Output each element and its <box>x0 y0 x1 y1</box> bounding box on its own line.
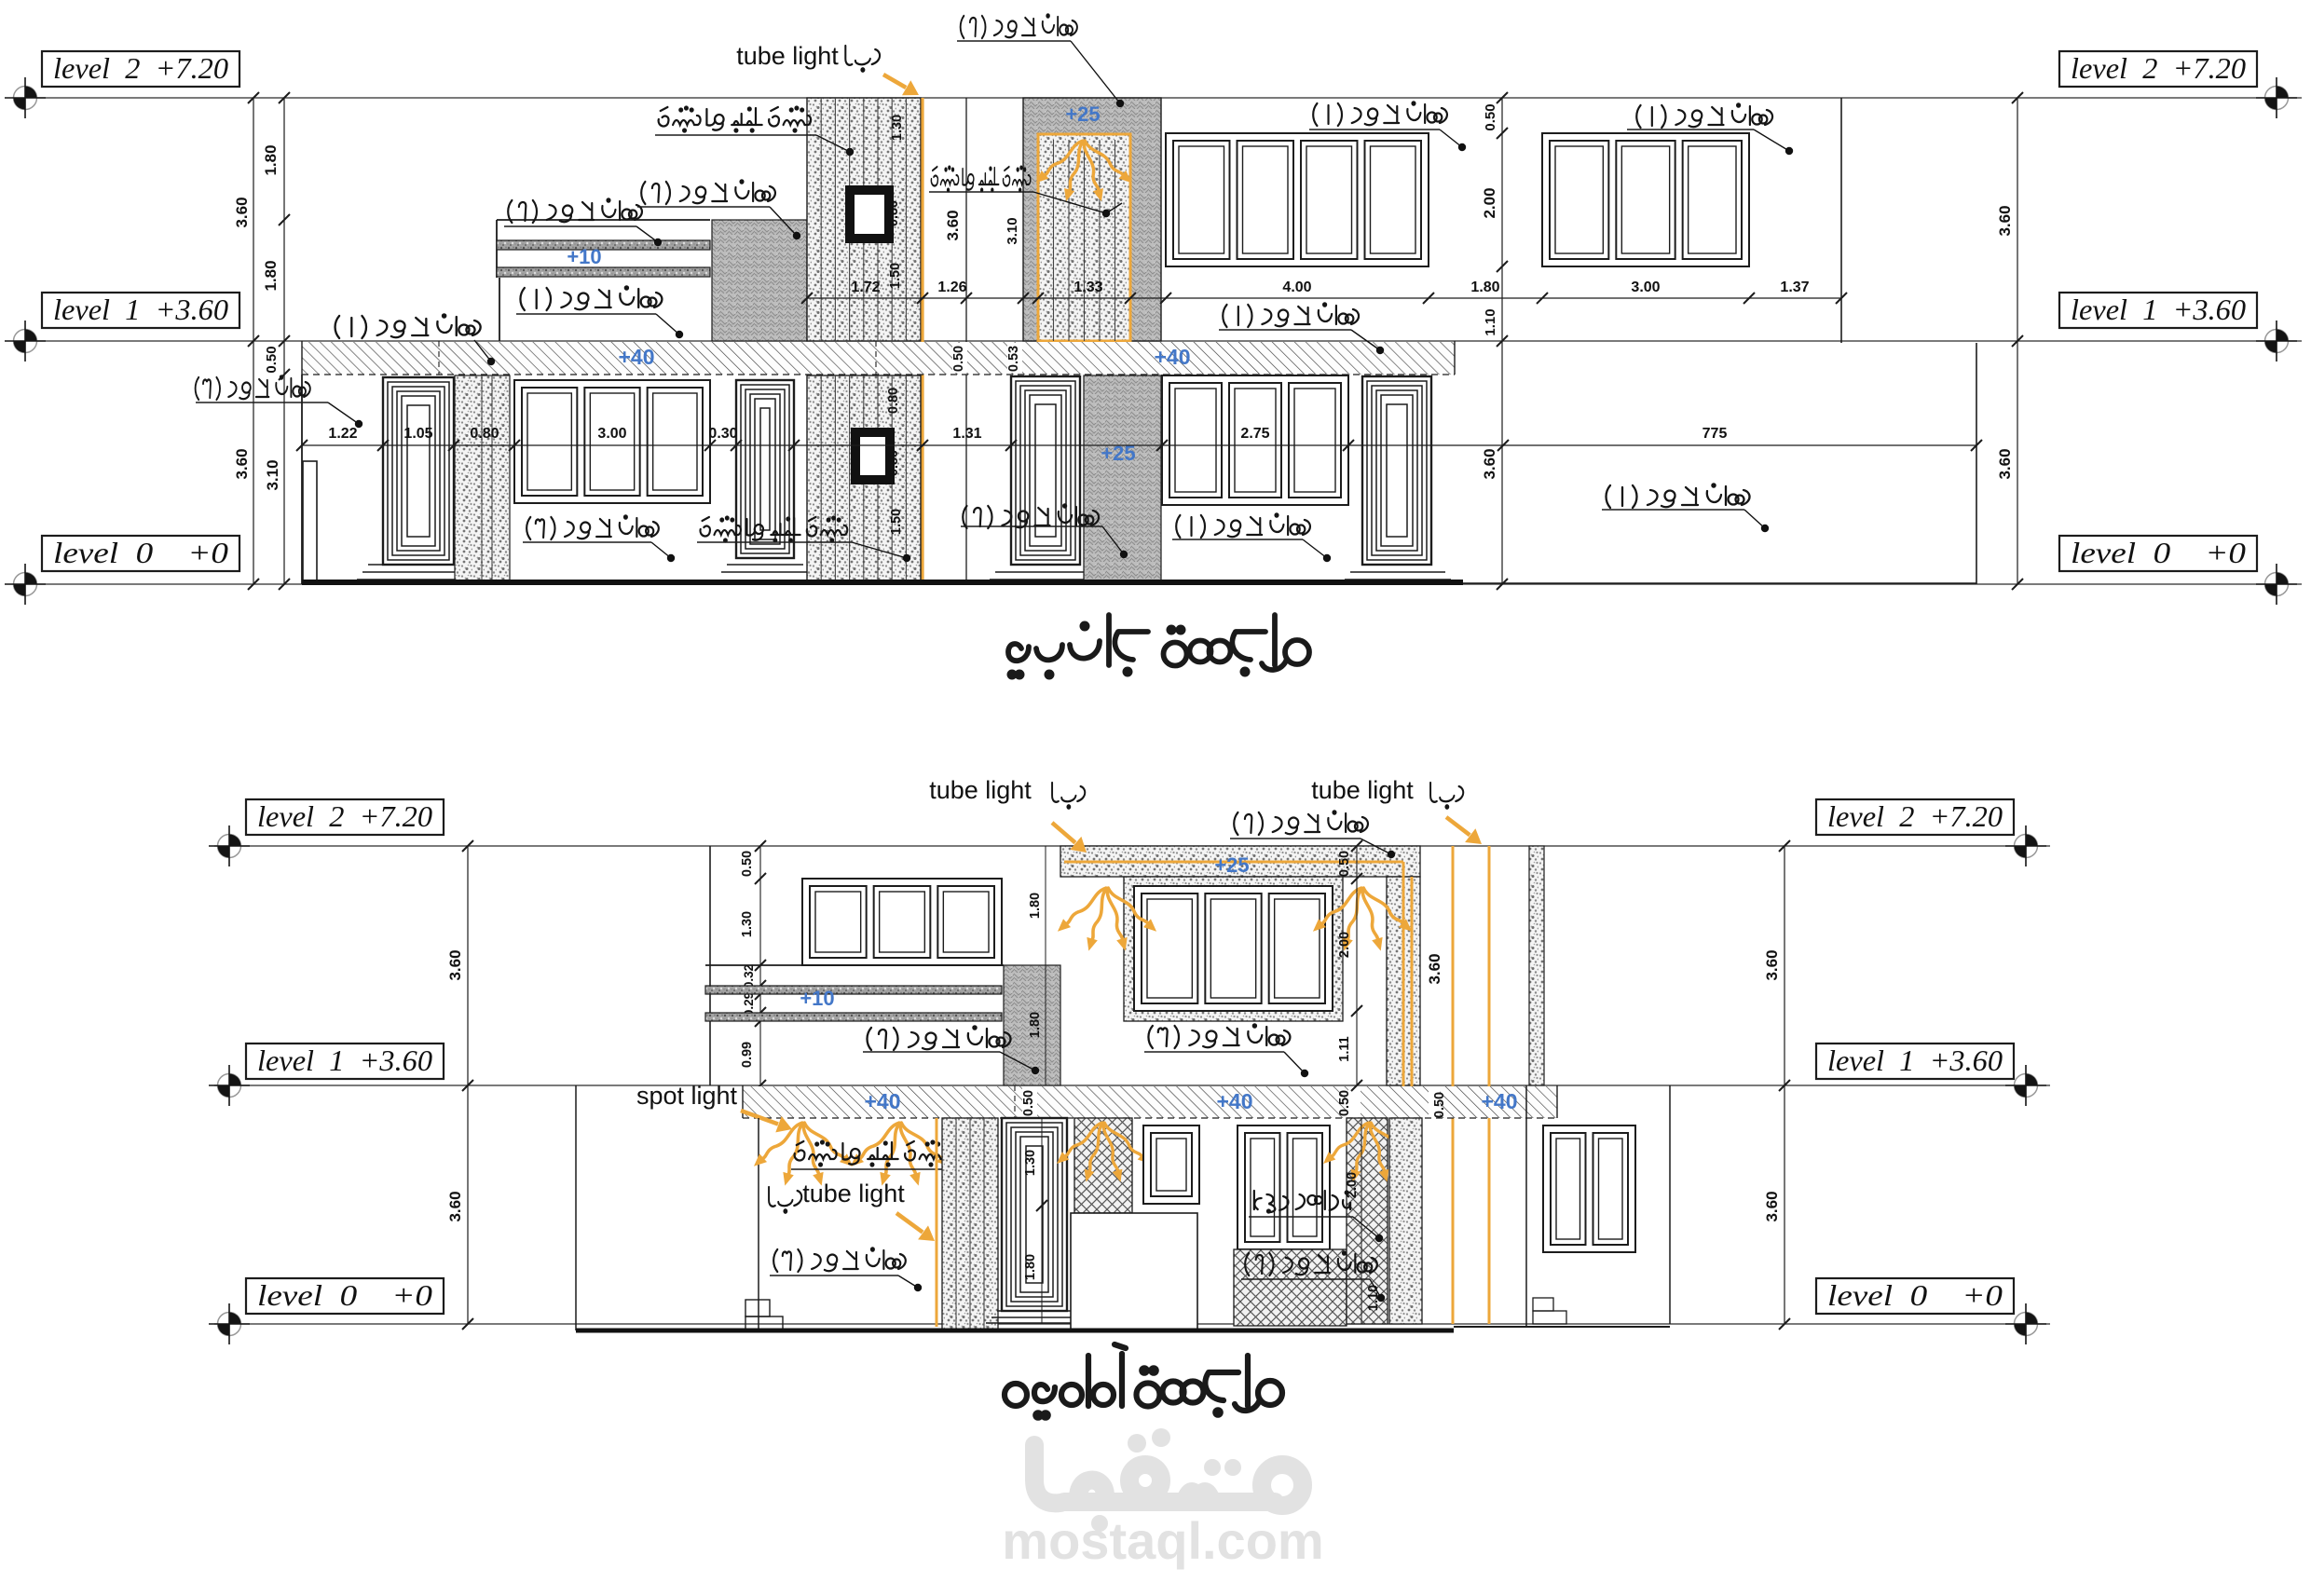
svg-text:0.80: 0.80 <box>886 388 901 414</box>
svg-text:+40: +40 <box>864 1089 900 1113</box>
svg-text:1.10: 1.10 <box>1366 1285 1381 1311</box>
svg-text:0.50: 0.50 <box>1337 851 1352 877</box>
svg-text:3.10: 3.10 <box>264 459 281 490</box>
svg-text:0.50: 0.50 <box>1432 1092 1447 1118</box>
svg-text:3.60: 3.60 <box>233 448 251 479</box>
svg-text:3.60: 3.60 <box>944 210 962 240</box>
svg-text:1.80: 1.80 <box>1028 893 1043 919</box>
svg-text:+40: +40 <box>1154 345 1190 369</box>
svg-text:3.10: 3.10 <box>1005 217 1020 244</box>
svg-text:3.60: 3.60 <box>1996 205 2014 236</box>
svg-text:2.00: 2.00 <box>1345 1172 1360 1198</box>
svg-text:0.50: 0.50 <box>1483 103 1498 130</box>
svg-text:1.50: 1.50 <box>888 263 903 289</box>
svg-text:+10: +10 <box>567 245 601 268</box>
svg-text:level 1 +3.60: level 1 +3.60 <box>53 293 228 326</box>
svg-text:level 2 +7.20: level 2 +7.20 <box>2071 51 2246 85</box>
svg-text:+40: +40 <box>1216 1089 1252 1113</box>
svg-text:1.10: 1.10 <box>1483 308 1498 335</box>
svg-text:0.32: 0.32 <box>742 964 756 989</box>
svg-text:1.05: 1.05 <box>403 426 432 442</box>
svg-text:1.80: 1.80 <box>262 260 280 291</box>
svg-text:2.00: 2.00 <box>1337 932 1352 958</box>
svg-text:1.33: 1.33 <box>1073 280 1102 295</box>
svg-text:level 2 +7.20: level 2 +7.20 <box>1827 799 2003 833</box>
svg-text:tube light: tube light <box>929 776 1032 804</box>
svg-text:1.80: 1.80 <box>262 144 280 175</box>
svg-text:+25: +25 <box>1065 102 1100 126</box>
svg-text:0.30: 0.30 <box>708 426 737 442</box>
svg-text:level 1 +3.60: level 1 +3.60 <box>1827 1044 2003 1077</box>
svg-text:0.53: 0.53 <box>1006 346 1021 372</box>
svg-text:3.00: 3.00 <box>597 426 626 442</box>
svg-text:1.22: 1.22 <box>328 426 357 442</box>
svg-text:level 2 +7.20: level 2 +7.20 <box>53 51 228 85</box>
svg-text:3.60: 3.60 <box>1763 1191 1781 1221</box>
svg-text:+25: +25 <box>1214 853 1249 877</box>
svg-text:mostaql.com: mostaql.com <box>1002 1511 1323 1570</box>
svg-text:1.80: 1.80 <box>1028 1012 1043 1038</box>
svg-text:2.00: 2.00 <box>1481 187 1498 218</box>
svg-text:level 1 +3.60: level 1 +3.60 <box>257 1044 432 1077</box>
svg-text:0.50: 0.50 <box>951 346 966 372</box>
svg-text:1.30: 1.30 <box>740 911 755 937</box>
svg-text:tube light: tube light <box>736 42 839 70</box>
svg-text:+40: +40 <box>618 345 654 369</box>
svg-text:0.99: 0.99 <box>740 1042 755 1068</box>
svg-text:3.60: 3.60 <box>1763 949 1781 980</box>
svg-text:1.72: 1.72 <box>851 280 880 295</box>
svg-text:1.11: 1.11 <box>1337 1036 1352 1061</box>
svg-text:+40: +40 <box>1481 1089 1517 1113</box>
svg-text:spot light: spot light <box>636 1082 738 1110</box>
svg-text:level 0 +0: level 0 +0 <box>53 536 228 569</box>
svg-text:level 0 +0: level 0 +0 <box>1827 1278 2003 1312</box>
svg-text:level 1 +3.60: level 1 +3.60 <box>2071 293 2246 326</box>
svg-text:1.30: 1.30 <box>890 115 905 141</box>
svg-text:tube light: tube light <box>802 1180 905 1207</box>
svg-text:3.60: 3.60 <box>233 197 251 227</box>
svg-text:2.75: 2.75 <box>1240 426 1269 442</box>
svg-text:3.00: 3.00 <box>1631 280 1660 295</box>
svg-text:level 2 +7.20: level 2 +7.20 <box>257 799 432 833</box>
svg-text:3.60: 3.60 <box>446 949 464 980</box>
svg-text:1.31: 1.31 <box>952 426 981 442</box>
svg-text:3.60: 3.60 <box>446 1191 464 1221</box>
svg-text:0.80: 0.80 <box>470 426 499 442</box>
svg-text:1.37: 1.37 <box>1780 280 1809 295</box>
svg-text:0.50: 0.50 <box>1337 1090 1352 1116</box>
svg-text:775: 775 <box>1702 426 1728 442</box>
svg-text:0.80: 0.80 <box>886 200 901 226</box>
svg-text:0.50: 0.50 <box>740 851 755 877</box>
svg-text:1.30: 1.30 <box>1023 1150 1038 1176</box>
svg-text:1.80: 1.80 <box>1470 280 1499 295</box>
svg-text:0.50: 0.50 <box>264 346 280 373</box>
svg-text:1.50: 1.50 <box>889 509 904 535</box>
svg-text:1.26: 1.26 <box>937 280 966 295</box>
svg-text:level 0 +0: level 0 +0 <box>257 1278 432 1312</box>
svg-text:3.60: 3.60 <box>1481 448 1498 479</box>
svg-text:+10: +10 <box>800 987 834 1010</box>
svg-text:1.80: 1.80 <box>1023 1254 1038 1280</box>
svg-text:4.00: 4.00 <box>1282 280 1311 295</box>
svg-text:0.80: 0.80 <box>886 450 901 476</box>
svg-text:3.60: 3.60 <box>1426 953 1443 984</box>
svg-text:tube light: tube light <box>1311 776 1414 804</box>
svg-text:0.50: 0.50 <box>1021 1090 1036 1116</box>
svg-text:level 0 +0: level 0 +0 <box>2071 536 2246 569</box>
svg-text:3.60: 3.60 <box>1996 448 2014 479</box>
